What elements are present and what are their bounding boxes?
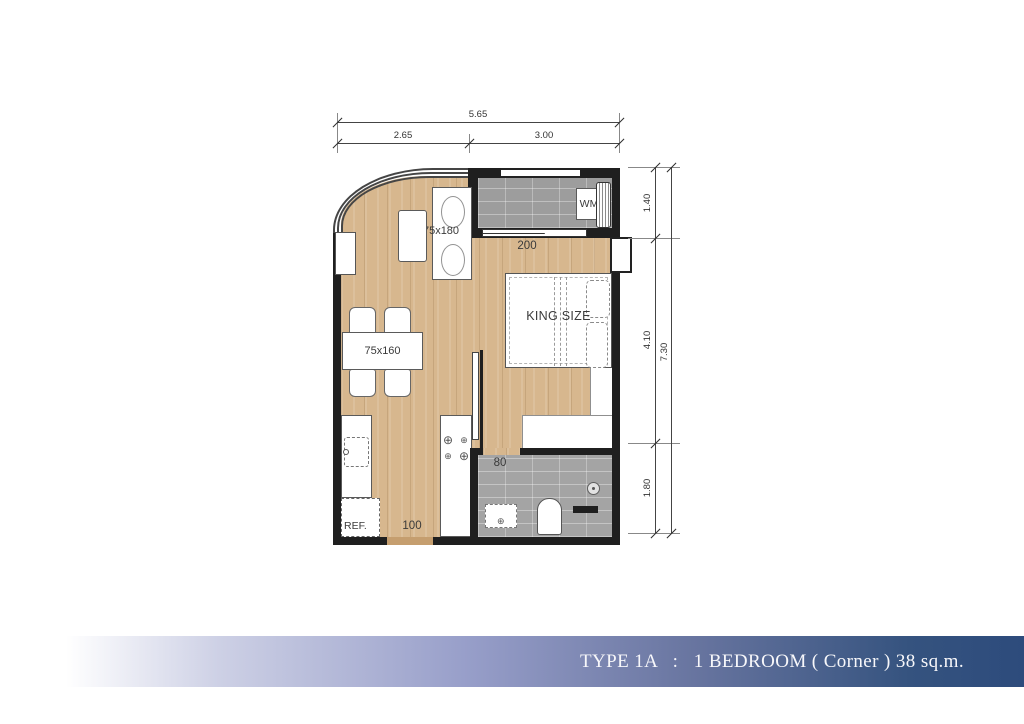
- dim-label-right-total: 7.30: [659, 332, 671, 372]
- sofa-cushion: [441, 244, 465, 276]
- dim-label-top-seg2: 3.00: [514, 130, 574, 142]
- bed-label: KING SIZE: [505, 310, 612, 323]
- bed-pillow: [586, 322, 608, 368]
- dining-table-dimension-label: 75x160: [364, 345, 400, 358]
- toilet: [537, 498, 562, 535]
- dim-label-right-seg1: 1.40: [642, 183, 654, 223]
- bathroom-door-width-label: 80: [483, 457, 517, 470]
- refrigerator: REF.: [341, 498, 380, 537]
- unit-type-banner: TYPE 1A : 1 BEDROOM ( Corner ) 38 sq.m.: [66, 636, 1024, 687]
- wall-cabinet: [335, 232, 356, 275]
- bathroom-sink: ⊕: [485, 504, 517, 528]
- stove-burner-icon: ⊕: [440, 432, 456, 448]
- dining-table: 75x160: [342, 332, 423, 370]
- dim-label-top-total: 5.65: [448, 109, 508, 121]
- dining-chair: [349, 307, 376, 335]
- dimension-line-right-segments: [655, 167, 656, 533]
- bedroom-sliding-door: [472, 352, 479, 440]
- wardrobe-area: [522, 415, 612, 448]
- balcony-window: [501, 168, 580, 178]
- balcony-sliding-door: [482, 229, 587, 237]
- balcony-door-width-label: 200: [500, 240, 554, 253]
- wardrobe-area-side: [590, 367, 612, 415]
- bathroom-wall-left: [470, 448, 478, 537]
- dimension-line-right-total: [671, 167, 672, 533]
- kitchen-sink: [344, 437, 369, 467]
- ac-ledge: [610, 237, 632, 273]
- wall-left: [333, 233, 341, 545]
- unit-type-banner-text: TYPE 1A : 1 BEDROOM ( Corner ) 38 sq.m.: [580, 651, 964, 673]
- floor-plan-page: WM 75x180 75x160: [0, 0, 1024, 724]
- sofa-cushion: [441, 196, 465, 228]
- coffee-table: [398, 210, 427, 262]
- floor-plan: WM 75x180 75x160: [333, 168, 620, 545]
- stove-burner-icon: ⊕: [440, 448, 456, 464]
- dining-chair: [349, 369, 376, 397]
- entry-width-label: 100: [389, 520, 435, 533]
- dimension-line-top-total: [337, 122, 619, 123]
- shower-partition-wall: [573, 506, 598, 513]
- wall-right: [612, 168, 620, 545]
- dimension-line-top-segments: [337, 143, 619, 144]
- dim-label-right-seg3: 1.80: [642, 468, 654, 508]
- extension-line: [619, 113, 620, 153]
- refrigerator-label: REF.: [344, 520, 367, 533]
- entry-opening: [387, 537, 433, 545]
- dining-chair: [384, 307, 411, 335]
- shower-head-icon: [587, 482, 600, 495]
- stove-burner-icon: ⊕: [456, 432, 472, 448]
- faucet-icon: ⊕: [497, 517, 505, 526]
- ac-condenser-unit: [596, 182, 611, 228]
- wall-bottom: [333, 537, 620, 545]
- stove-burners: ⊕ ⊕ ⊕ ⊕: [440, 432, 472, 464]
- dim-label-right-seg2: 4.10: [642, 320, 654, 360]
- bathroom-door-opening: [483, 448, 520, 455]
- bedroom-partition-wall: [480, 350, 483, 448]
- dim-label-top-seg1: 2.65: [373, 130, 433, 142]
- extension-line: [337, 113, 338, 153]
- faucet-icon: [343, 449, 349, 455]
- dining-chair: [384, 369, 411, 397]
